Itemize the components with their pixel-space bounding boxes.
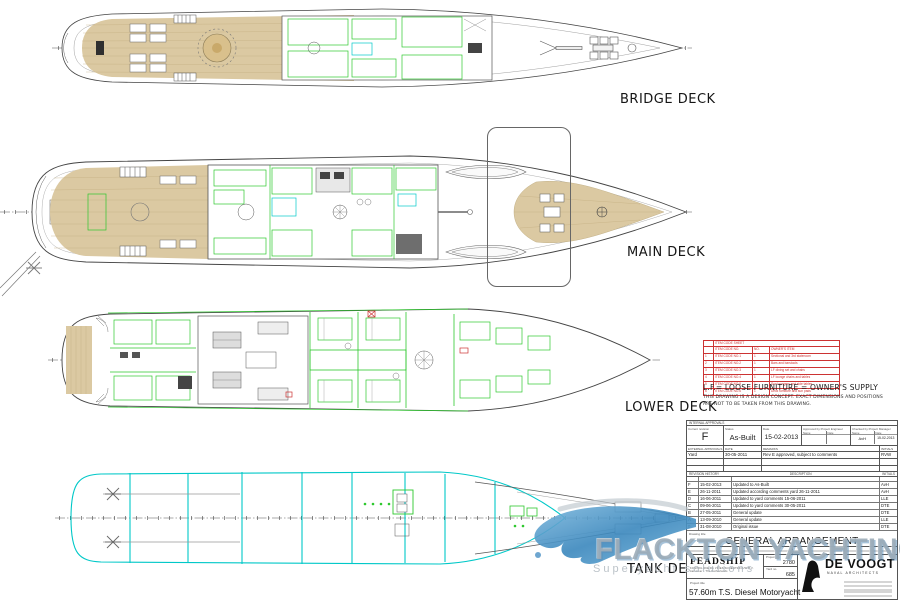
hull-outline xyxy=(32,156,686,268)
propeller-shafts xyxy=(103,488,240,548)
deck-stairs xyxy=(174,15,196,81)
main-deck-plan xyxy=(0,138,692,302)
revision-row: 031-08-2010 Original issueDTE xyxy=(687,524,897,531)
project-title-cell: Project title 57.60m T.S. Diesel Motorya… xyxy=(687,579,797,600)
item-row: 2ITEM CODE NO.2 1Bars and barstools xyxy=(704,360,839,367)
laundry-equipment xyxy=(120,352,140,358)
current-revision-value: F xyxy=(687,431,723,444)
project-title: 57.60m T.S. Diesel Motoryacht xyxy=(689,588,795,597)
main-salon-and-interior xyxy=(208,165,438,259)
drawing-title-row: Drawing title GENERAL ARRANGEMENT xyxy=(687,531,897,547)
tank-deck-plan xyxy=(55,446,700,590)
approved-by-cell: Approved by Project Engineer Name Date xyxy=(801,426,850,445)
revision-row: A13-09-2010 General updateLLE xyxy=(687,517,897,524)
builder-architect-row: FEADSHIP KONINKLIJKE DE VRIES SCHEEPSBOU… xyxy=(687,555,897,600)
date-value: 15-02-2013 xyxy=(762,431,801,445)
current-revision-cell: Current revision F xyxy=(687,426,723,445)
aft-teak-deck xyxy=(82,15,354,81)
watermark-swoosh xyxy=(520,495,698,567)
yard-number-cell: Yard no. 685 xyxy=(764,567,797,578)
drawing-sheet: BRIDGE DECK xyxy=(0,0,900,600)
item-row: 4ITEM CODE NO.4 1LF lounge chairs and ta… xyxy=(704,374,839,381)
architect-panel: DE VOOGT NAVAL ARCHITECTS xyxy=(798,555,897,600)
engine-room xyxy=(178,316,308,404)
concept-note-line2: ARE NOT TO BE TAKEN FROM THIS DRAWING. xyxy=(703,402,811,407)
revision-row: D16-06-2011 Updated to yard comments 15-… xyxy=(687,496,897,503)
item-row: 1ITEM CODE NO.1 1Sectional and 3rd state… xyxy=(704,353,839,360)
bridge-deck-label: BRIDGE DECK xyxy=(620,92,716,107)
hull-outline xyxy=(62,309,650,411)
external-approval-row: Yard 30-05-2011 Rev E approved, subject … xyxy=(687,452,897,459)
revision-row: C09-06-2011 Updated to yard comments 30-… xyxy=(687,503,897,510)
feadship-logo: FEADSHIP xyxy=(690,557,761,567)
devoogt-name: DE VOOGT xyxy=(825,557,895,571)
hull-outline xyxy=(62,9,682,87)
tank-equipment xyxy=(364,490,537,536)
ensign-staff xyxy=(0,252,42,296)
item-row: 3ITEM CODE NO.3 1LF dining set and chair… xyxy=(704,367,839,374)
aft-main-deck-teak xyxy=(50,165,208,259)
beach-platform xyxy=(66,316,108,404)
tank-hull-cyan xyxy=(71,472,565,564)
external-approval-row-empty xyxy=(687,459,897,466)
bow-structure xyxy=(475,482,692,554)
guest-cabins xyxy=(310,312,550,408)
status-cell: Status As-Built xyxy=(723,426,761,445)
sun-loungers xyxy=(130,24,166,72)
devoogt-subtitle: NAVAL ARCHITECTS xyxy=(827,571,895,575)
foredeck-details xyxy=(540,37,636,59)
concept-note-line1: THIS DRAWING IS A DESIGN CONCEPT. EXACT … xyxy=(703,395,883,400)
office-address-lines xyxy=(844,589,892,597)
approvals-row: Current revision F Status As-Built Date … xyxy=(687,426,897,446)
main-deck-label: MAIN DECK xyxy=(627,245,705,260)
revision-row: B27-05-2011 General updateDTE xyxy=(687,510,897,517)
red-markers xyxy=(286,311,468,397)
date-cell: Date 15-02-2013 xyxy=(761,426,801,445)
crew-area xyxy=(110,320,196,400)
drawing-title: GENERAL ARRANGEMENT xyxy=(687,536,897,547)
checked-by-cell: Checked by Project Manager Name AvH Date… xyxy=(850,426,897,445)
item-table-title-row: ITEM CODE SHEET xyxy=(704,341,839,346)
lower-deck-plan xyxy=(48,292,660,428)
status-value: As-Built xyxy=(724,431,761,445)
project-number-cell: Project no. 2780 xyxy=(764,555,797,567)
revision-row: F15-02-2013 Updated to As-BuiltAvH xyxy=(687,482,897,489)
exterior-dining-table xyxy=(198,29,236,67)
devoogt-logo-icon xyxy=(800,558,822,596)
item-table-header-row: ITEM CODE NO. NO. OWNER'S ITEM xyxy=(704,346,839,353)
title-block: INTERNAL APPROVALS Current revision F St… xyxy=(686,420,898,600)
bridge-deck-plan xyxy=(52,3,692,103)
builder-panel: FEADSHIP KONINKLIJKE DE VRIES SCHEEPSBOU… xyxy=(687,555,798,600)
sky-lounge xyxy=(282,16,492,80)
detail-inset-outline xyxy=(487,127,571,287)
revision-row: E26-11-2011 Updated according comments y… xyxy=(687,489,897,496)
loose-furniture-note: L.F.= LOOSE FURNITURE = OWNER'S SUPPLY xyxy=(703,383,878,392)
drawing-info-row xyxy=(687,547,897,555)
